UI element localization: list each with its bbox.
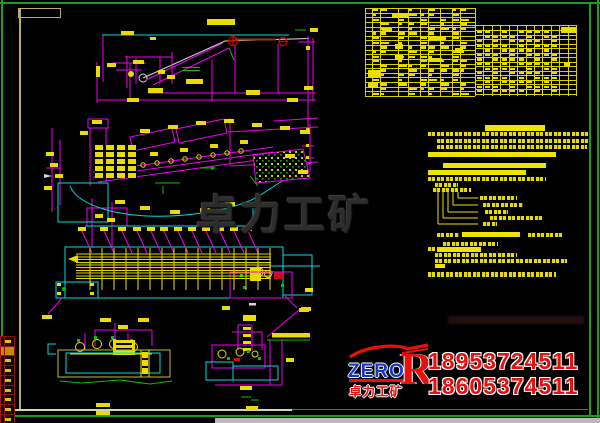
bom-cell-text — [552, 72, 557, 74]
bom-solid-cell — [395, 55, 403, 60]
bom-parts-table — [365, 8, 576, 96]
bom-cell-text — [373, 37, 379, 39]
bom-cell-text — [510, 68, 515, 70]
bom-cell-text — [493, 86, 498, 88]
logo-subtitle-cn: 卓力工矿 — [349, 381, 403, 400]
bom-cell-text — [535, 86, 540, 88]
bom-cell-text — [485, 81, 490, 83]
note-line — [437, 233, 459, 237]
bom-cell-text — [453, 69, 459, 71]
bom-cell-text — [399, 19, 404, 21]
bom-cell-text — [477, 72, 482, 74]
bom-cell-text — [381, 9, 387, 11]
bom-cell-text — [510, 40, 515, 42]
bom-cell-text — [493, 58, 498, 60]
bom-cell-text — [453, 93, 459, 95]
bom-col-line — [365, 8, 366, 96]
bom-cell-text — [493, 45, 498, 47]
bom-cell-text — [510, 72, 515, 74]
bom-cell-text — [519, 31, 524, 33]
bom-cell-text — [461, 19, 469, 21]
bom-cell-text — [409, 23, 414, 25]
bom-cell-text — [461, 60, 467, 62]
bom-cell-text — [502, 68, 507, 70]
bom-cell-text — [527, 68, 532, 70]
bom-cell-text — [493, 54, 498, 56]
bom-cell-text — [399, 79, 402, 81]
bom-solid-cell — [561, 27, 576, 33]
bom-cell-text — [429, 28, 435, 30]
bom-cell-text — [373, 19, 379, 21]
bom-cell-text — [461, 9, 466, 11]
bom-header-line — [430, 25, 576, 26]
bom-cell-text — [399, 14, 405, 16]
note-line — [428, 170, 526, 175]
bom-solid-cell — [428, 58, 442, 62]
bom-cell-text — [485, 54, 490, 56]
bom-cell-text — [502, 45, 507, 47]
strip-cell-text — [5, 379, 11, 382]
bom-cell-text — [461, 65, 466, 67]
bom-cell-text — [544, 86, 549, 88]
bom-cell-text — [519, 81, 524, 83]
bom-cell-text — [373, 56, 379, 58]
bom-cell-text — [461, 69, 464, 71]
bom-cell-text — [552, 77, 557, 79]
note-line — [428, 132, 589, 136]
bom-cell-text — [421, 88, 424, 90]
watermark-text: 卓力工矿 — [196, 181, 372, 241]
bom-cell-text — [373, 42, 379, 44]
bom-cell-text — [421, 46, 426, 48]
section-detail-left — [48, 318, 172, 415]
bom-cell-text — [399, 32, 405, 34]
note-line — [435, 264, 445, 268]
bom-cell-text — [527, 40, 532, 42]
bom-cell-text — [477, 54, 482, 56]
bom-solid-cell — [455, 48, 463, 53]
bom-cell-text — [399, 60, 402, 62]
bom-cell-text — [519, 49, 524, 51]
bom-cell-text — [519, 45, 524, 47]
strip-cell-text — [5, 418, 11, 421]
bom-cell-text — [544, 31, 549, 33]
bom-cell-text — [373, 51, 376, 53]
note-line — [528, 233, 564, 237]
bom-cell-text — [519, 58, 524, 60]
bom-cell-text — [441, 42, 444, 44]
bom-solid-cell — [368, 70, 380, 78]
bom-cell-text — [544, 63, 549, 65]
bom-cell-text — [421, 42, 427, 44]
bom-cell-text — [510, 49, 515, 51]
bom-cell-text — [399, 74, 404, 76]
spec-callout-tree — [438, 192, 478, 224]
bom-cell-text — [485, 45, 490, 47]
phone-number-2: 18605374511 — [428, 373, 578, 400]
bom-cell-text — [441, 28, 449, 30]
bom-cell-text — [477, 63, 482, 65]
note-line — [435, 183, 458, 187]
bom-cell-text — [544, 36, 549, 38]
bom-cell-text — [477, 90, 482, 92]
note-line — [443, 242, 498, 246]
bom-cell-text — [535, 58, 540, 60]
hopper-grate-blocks — [95, 145, 137, 178]
bom-cell-text — [381, 46, 387, 48]
bom-cell-text — [552, 40, 557, 42]
bom-cell-text — [485, 36, 490, 38]
bom-cell-text — [552, 36, 557, 38]
bom-cell-text — [409, 28, 412, 30]
bom-cell-text — [502, 58, 507, 60]
bom-cell-text — [453, 28, 456, 30]
bom-cell-text — [485, 63, 490, 65]
bom-cell-text — [510, 58, 515, 60]
strip-cell-text — [5, 340, 11, 343]
bom-cell-text — [441, 83, 449, 85]
bom-cell-text — [544, 45, 549, 47]
bom-cell-text — [441, 46, 449, 48]
bom-row-line — [365, 96, 475, 97]
bom-cell-text — [453, 56, 459, 58]
bom-cell-text — [373, 32, 376, 34]
bom-cell-text — [441, 79, 444, 81]
bom-cell-text — [502, 36, 507, 38]
bom-cell-text — [477, 40, 482, 42]
bom-cell-text — [381, 32, 386, 34]
bom-cell-text — [409, 69, 417, 71]
bom-cell-text — [381, 42, 389, 44]
bom-cell-text — [453, 74, 459, 76]
note-line — [428, 152, 556, 157]
bom-cell-text — [527, 54, 532, 56]
strip-cell-text — [5, 398, 11, 401]
bom-cell-text — [421, 56, 427, 58]
note-line — [437, 247, 481, 252]
bom-cell-text — [381, 93, 384, 95]
bom-cell-text — [381, 51, 386, 53]
bom-cell-text — [502, 31, 507, 33]
bom-cell-text — [477, 86, 482, 88]
bom-cell-text — [552, 68, 557, 70]
bom-cell-text — [429, 74, 432, 76]
bom-cell-text — [485, 77, 490, 79]
bom-cell-text — [502, 77, 507, 79]
bom-col-line — [559, 25, 560, 96]
bom-cell-text — [527, 72, 532, 74]
section-detail-right — [206, 307, 311, 410]
strip-cell-text — [5, 408, 11, 411]
bom-cell-text — [373, 60, 379, 62]
bom-cell-text — [381, 65, 387, 67]
bom-cell-text — [544, 81, 549, 83]
bom-cell-text — [429, 51, 434, 53]
bom-cell-text — [409, 51, 417, 53]
bom-cell-text — [527, 36, 532, 38]
bom-col-line — [568, 25, 569, 96]
top-lever-detail-view — [96, 19, 318, 159]
bom-cell-text — [409, 9, 412, 11]
phone-number-1: 18953724511 — [428, 348, 578, 375]
strip-cell-text — [5, 359, 11, 362]
bom-cell-text — [409, 56, 415, 58]
bom-cell-text — [409, 88, 417, 90]
bom-cell-text — [453, 32, 459, 34]
bom-cell-text — [461, 88, 464, 90]
bom-cell-text — [461, 93, 469, 95]
bom-cell-text — [409, 93, 415, 95]
bom-cell-text — [421, 65, 426, 67]
bom-cell-text — [453, 37, 459, 39]
bom-cell-text — [373, 9, 378, 11]
bom-cell-text — [477, 77, 482, 79]
bom-cell-text — [552, 90, 557, 92]
note-line — [485, 125, 545, 131]
bom-solid-cell — [368, 82, 378, 88]
bom-col-line — [576, 25, 577, 96]
bom-cell-text — [409, 65, 412, 67]
strip-col-line — [4, 336, 5, 423]
bom-cell-text — [381, 23, 389, 25]
bom-cell-text — [453, 19, 459, 21]
bom-cell-text — [552, 45, 557, 47]
bom-cell-text — [381, 83, 387, 85]
bom-cell-text — [441, 69, 447, 71]
bom-cell-text — [477, 45, 482, 47]
bom-cell-text — [421, 60, 427, 62]
bom-cell-text — [544, 49, 549, 51]
bom-cell-text — [493, 40, 498, 42]
bom-cell-text — [453, 14, 459, 16]
bom-cell-text — [461, 83, 466, 85]
bom-cell-text — [381, 88, 386, 90]
horizontal-scrollbar[interactable] — [215, 418, 600, 423]
bom-solid-cell — [428, 36, 446, 40]
bom-cell-text — [493, 36, 498, 38]
callout-label — [480, 196, 517, 200]
bom-cell-text — [493, 77, 498, 79]
bom-cell-text — [544, 68, 549, 70]
bom-cell-text — [373, 93, 379, 95]
bom-cell-text — [510, 54, 515, 56]
cad-drawing-screenshot: 卓力工矿 ZERO 卓力工矿 R 18953724511 18605374511 — [0, 0, 600, 423]
bom-cell-text — [399, 37, 404, 39]
bom-cell-text — [527, 49, 532, 51]
bom-solid-cell — [395, 44, 403, 49]
conveyor-plan-band — [76, 253, 271, 279]
bom-cell-text — [421, 79, 427, 81]
bom-cell-text — [552, 58, 557, 60]
bom-cell-text — [373, 79, 379, 81]
note-line — [443, 163, 546, 168]
bom-cell-text — [429, 14, 434, 16]
bom-cell-text — [485, 86, 490, 88]
bom-cell-text — [429, 93, 432, 95]
bom-cell-text — [493, 90, 498, 92]
bom-cell-text — [441, 88, 447, 90]
bom-cell-text — [493, 72, 498, 74]
bom-cell-text — [421, 19, 427, 21]
bom-cell-text — [429, 46, 435, 48]
bom-cell-text — [453, 9, 456, 11]
callout-label — [490, 216, 544, 220]
bom-cell-text — [399, 83, 407, 85]
bom-cell-text — [510, 81, 515, 83]
bom-cell-text — [429, 79, 437, 81]
note-line — [433, 188, 471, 192]
bom-cell-text — [535, 40, 540, 42]
bom-cell-text — [552, 54, 557, 56]
bom-cell-text — [409, 46, 412, 48]
bom-cell-text — [421, 14, 424, 16]
bom-cell-text — [441, 65, 449, 67]
bom-cell-text — [544, 54, 549, 56]
bom-cell-text — [421, 23, 427, 25]
bom-cell-text — [409, 32, 417, 34]
bom-cell-text — [519, 72, 524, 74]
strip-cell-text — [5, 369, 11, 372]
bom-cell-text — [535, 31, 540, 33]
bom-cell-text — [552, 86, 557, 88]
note-line — [437, 139, 589, 143]
bom-solid-cell — [564, 63, 570, 66]
note-line — [435, 253, 517, 257]
bom-cell-text — [477, 31, 482, 33]
zero-logo-block: ZERO 卓力工矿 R 18953724511 18605374511 — [340, 340, 598, 418]
bom-cell-text — [510, 36, 515, 38]
strip-col-line — [14, 336, 15, 423]
bom-cell-text — [421, 37, 427, 39]
bom-cell-text — [381, 69, 386, 71]
bom-cell-text — [527, 31, 532, 33]
note-line — [462, 232, 520, 237]
bom-cell-text — [409, 14, 417, 16]
note-line — [435, 259, 567, 263]
bom-cell-text — [519, 90, 524, 92]
bom-cell-text — [535, 77, 540, 79]
callout-label — [483, 203, 523, 207]
callout-label — [483, 222, 497, 226]
bom-cell-text — [502, 63, 507, 65]
bom-cell-text — [535, 45, 540, 47]
note-line — [428, 247, 436, 251]
bom-cell-text — [485, 68, 490, 70]
bom-cell-text — [544, 77, 549, 79]
bom-cell-text — [535, 90, 540, 92]
bom-cell-text — [502, 90, 507, 92]
bom-cell-text — [399, 65, 407, 67]
bom-cell-text — [519, 77, 524, 79]
bom-cell-text — [502, 49, 507, 51]
note-line — [428, 177, 546, 181]
bom-cell-text — [485, 49, 490, 51]
bom-cell-text — [399, 23, 402, 25]
bom-cell-text — [519, 63, 524, 65]
bom-cell-text — [502, 81, 507, 83]
bom-cell-text — [485, 31, 490, 33]
bom-cell-text — [429, 69, 434, 71]
bom-solid-cell — [382, 28, 392, 32]
strip-cell-text — [5, 389, 11, 392]
bom-cell-text — [461, 42, 467, 44]
bom-cell-text — [453, 60, 458, 62]
callout-label — [485, 210, 508, 214]
bom-cell-text — [429, 88, 434, 90]
bom-cell-text — [510, 90, 515, 92]
note-line — [437, 145, 587, 149]
bom-cell-text — [429, 32, 434, 34]
bom-cell-text — [535, 72, 540, 74]
bom-cell-text — [421, 83, 426, 85]
bom-cell-text — [527, 81, 532, 83]
bom-cell-text — [493, 68, 498, 70]
bom-cell-text — [510, 86, 515, 88]
bom-cell-text — [373, 14, 376, 16]
bom-cell-text — [535, 54, 540, 56]
bom-cell-text — [527, 63, 532, 65]
bom-cell-text — [527, 86, 532, 88]
faint-watermark-streak — [448, 316, 584, 324]
bom-cell-text — [453, 79, 458, 81]
bom-cell-text — [519, 40, 524, 42]
bom-cell-text — [381, 74, 384, 76]
bom-cell-text — [461, 28, 466, 30]
bom-cell-text — [535, 63, 540, 65]
bom-cell-text — [441, 19, 446, 21]
bom-cell-text — [409, 74, 415, 76]
bom-cell-text — [477, 58, 482, 60]
left-edge-title-strip — [0, 336, 15, 423]
note-line — [428, 272, 556, 277]
bom-cell-text — [429, 9, 435, 11]
